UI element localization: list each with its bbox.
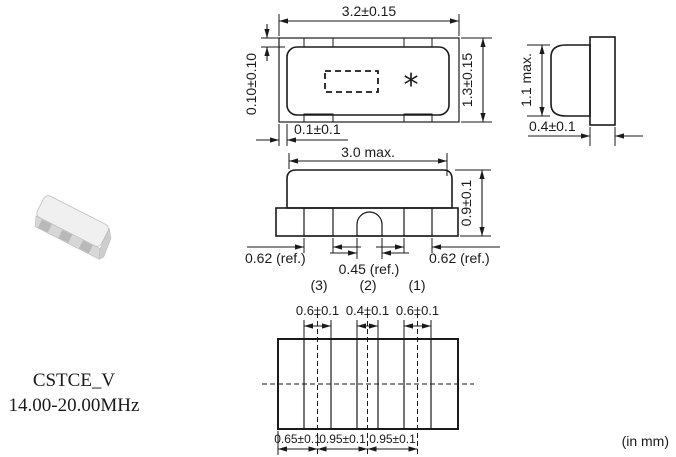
top-view-pad — [404, 38, 432, 47]
pin-label-2: (2) — [359, 277, 376, 293]
dim-side-max-height: 1.1 max. — [518, 53, 534, 107]
dim-land-pad3-width: 0.6±0.1 — [396, 303, 439, 318]
dim-front-max-width: 3.0 max. — [341, 144, 395, 160]
dim-top-overall-height: 1.3±0.15 — [459, 53, 475, 108]
top-view-body — [287, 47, 449, 115]
polarity-mark: * — [404, 68, 419, 103]
front-view-pad-3 — [304, 208, 333, 236]
dim-front-left-pad: 0.62 (ref.) — [245, 250, 306, 266]
part-series-name: CSTCE_V — [33, 370, 116, 391]
part-frequency-range: 14.00-20.00MHz — [9, 395, 140, 416]
front-view-pad-2-dome — [357, 212, 382, 236]
units-note: (in mm) — [622, 433, 669, 449]
dim-top-inset-horizontal: 0.1±0.1 — [294, 121, 341, 137]
datasheet-dimensions-figure: * 3.2±0.15 0.10±0.10 1.3±0.15 0.1±0.1 — [0, 0, 676, 457]
dim-front-right-pad: 0.62 (ref.) — [429, 250, 490, 266]
dim-side-terminal-width: 0.4±0.1 — [529, 118, 576, 134]
dim-top-inset-vertical: 0.10±0.10 — [243, 53, 259, 115]
side-view-end-cap — [590, 37, 615, 125]
dim-top-overall-width: 3.2±0.15 — [342, 3, 397, 19]
pin-label-3: (3) — [310, 277, 327, 293]
front-view-body — [287, 170, 452, 208]
top-view-outline — [279, 38, 459, 122]
component-photo — [31, 194, 118, 261]
dim-land-pad1-width: 0.6±0.1 — [296, 303, 339, 318]
dimension-drawing: * 3.2±0.15 0.10±0.10 1.3±0.15 0.1±0.1 — [0, 0, 676, 457]
front-view: 3.0 max. 0.9±0.1 0.62 (ref.) 0.62 (ref.)… — [245, 144, 500, 293]
top-view-pad — [304, 38, 333, 47]
dim-front-center-pad: 0.45 (ref.) — [339, 261, 400, 277]
top-view: * 3.2±0.15 0.10±0.10 1.3±0.15 0.1±0.1 — [243, 3, 492, 146]
dim-front-height: 0.9±0.1 — [458, 179, 474, 226]
side-view-body — [551, 45, 590, 116]
dim-land-pad2-to-pad3: 0.95±0.1 — [369, 432, 416, 446]
land-pattern-view: 0.6±0.1 0.4±0.1 0.6±0.1 0.65±0.1 0.95±0.… — [262, 303, 474, 455]
side-view: 1.1 max. 0.4±0.1 — [518, 37, 643, 146]
dim-land-pad1-to-pad2: 0.95±0.1 — [319, 432, 366, 446]
dim-land-edge-to-pad1: 0.65±0.1 — [274, 432, 321, 446]
front-view-pad-1 — [404, 208, 432, 236]
dim-land-pad2-width: 0.4±0.1 — [346, 303, 389, 318]
marking-area-dashed-box — [325, 71, 378, 92]
pin-label-1: (1) — [408, 277, 425, 293]
